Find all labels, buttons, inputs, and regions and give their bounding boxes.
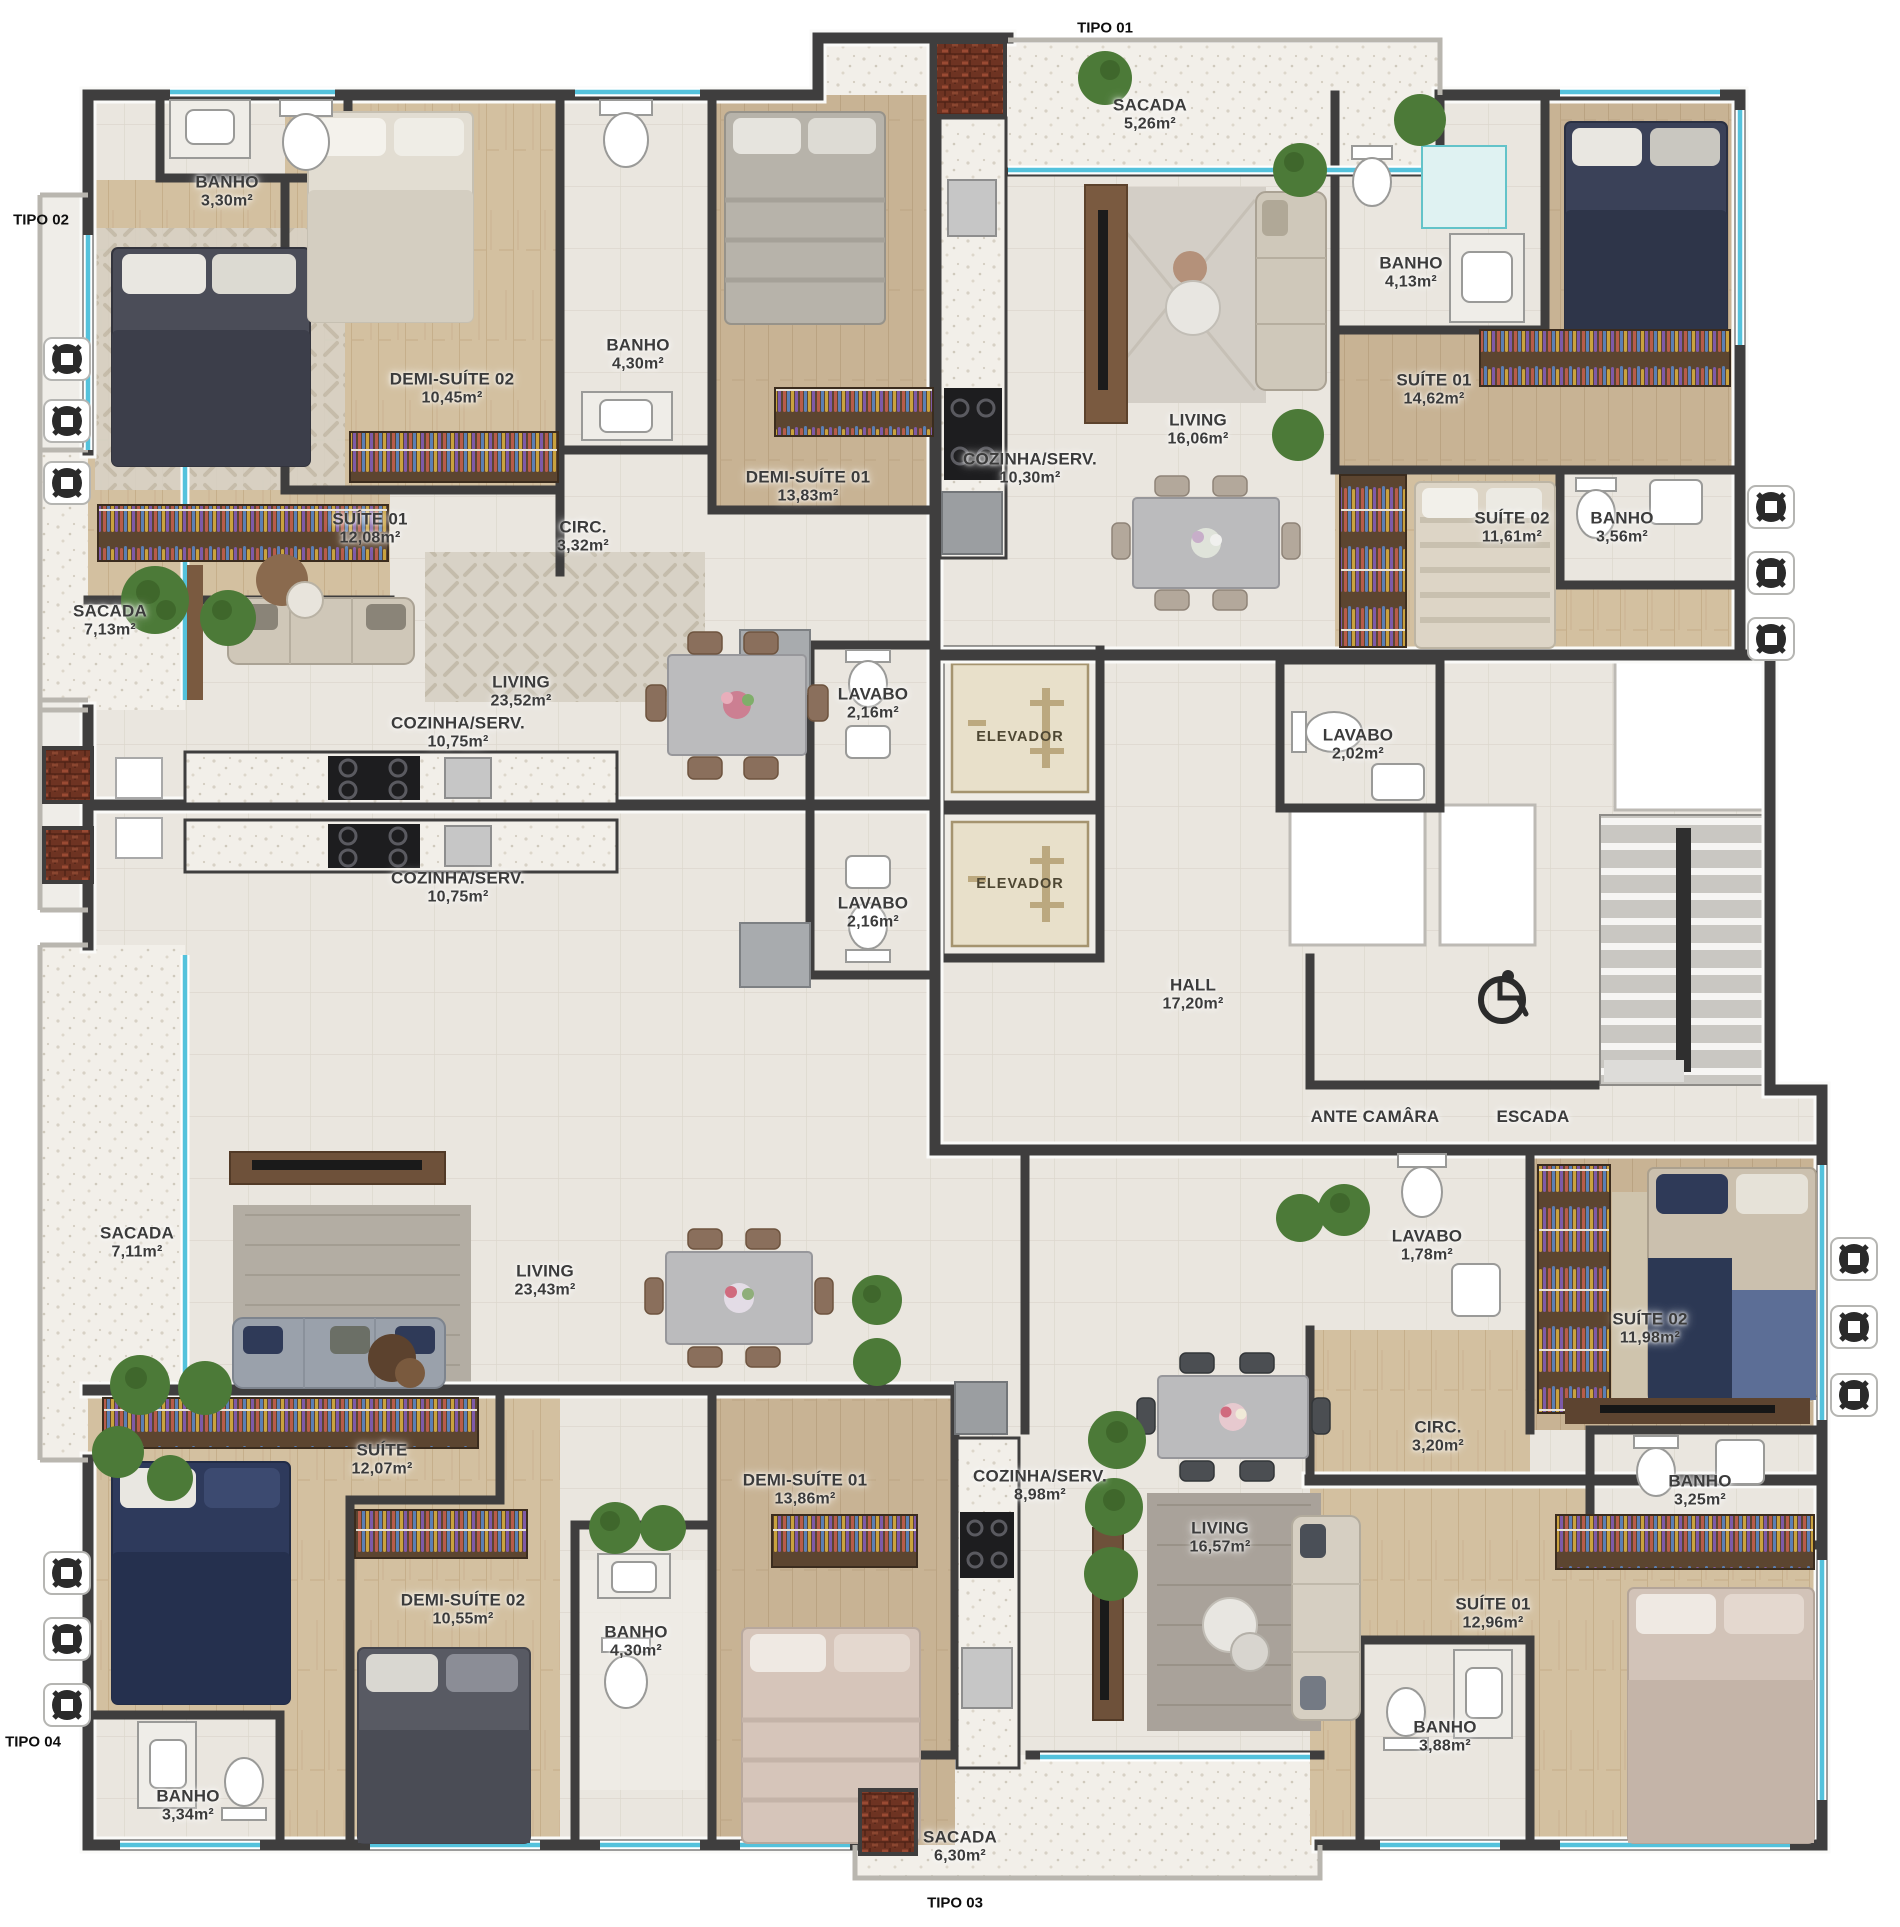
room-label-banho-29: BANHO3,34m² [156,1787,219,1826]
room-label-lavabo-22: LAVABO2,16m² [838,894,908,933]
room-area: 8,98m² [973,1487,1107,1506]
room-label-lavabo-17: LAVABO2,02m² [1323,726,1393,765]
room-area: 7,13m² [73,622,147,641]
room-name: SUÍTE 02 [1474,509,1549,529]
room-label-escada-20: ESCADA [1497,1107,1570,1127]
room-name: COZINHA/SERV. [391,714,525,734]
room-area: 3,88m² [1413,1738,1476,1757]
room-label-banho-27: BANHO4,30m² [604,1623,667,1662]
room-label-demi-su-te-01-28: DEMI-SUÍTE 0113,86m² [743,1471,867,1510]
room-name: SACADA [73,602,147,622]
room-area: 1,78m² [1392,1247,1462,1266]
room-name: DEMI-SUÍTE 02 [390,370,514,390]
room-name: LAVABO [838,894,908,914]
room-area: 16,06m² [1168,431,1229,450]
room-area: 3,25m² [1668,1492,1731,1511]
room-name: ESCADA [1497,1107,1570,1127]
room-label-sacada-7: SACADA7,13m² [73,602,147,641]
room-name: LIVING [1168,411,1229,431]
room-label-lavabo-32: LAVABO1,78m² [1392,1227,1462,1266]
room-area: 4,30m² [606,356,669,375]
tipo-label-tipo-03: TIPO 03 [927,1895,983,1912]
room-name: BANHO [1413,1718,1476,1738]
room-name: LAVABO [1323,726,1393,746]
room-name: SUÍTE 01 [1396,371,1471,391]
room-name: DEMI-SUÍTE 02 [401,1591,525,1611]
room-name: LIVING [491,673,552,693]
room-label-ante-cam-ra-19: ANTE CAMÂRA [1311,1107,1440,1127]
room-label-demi-su-te-01-3: DEMI-SUÍTE 0113,83m² [746,468,870,507]
room-label-su-te-02-15: SUÍTE 0211,61m² [1474,509,1549,548]
room-area: 16,57m² [1190,1539,1251,1558]
room-area: 10,75m² [391,889,525,908]
room-area: 3,30m² [195,193,258,212]
room-area: 3,34m² [156,1807,219,1826]
room-label-su-te-01-36: SUÍTE 0112,96m² [1455,1595,1530,1634]
room-area: 5,26m² [1113,116,1187,135]
room-area: 11,61m² [1474,529,1549,548]
room-name: LAVABO [1392,1227,1462,1247]
room-label-su-te-01-14: SUÍTE 0114,62m² [1396,371,1471,410]
room-area: 2,16m² [838,914,908,933]
room-name: COZINHA/SERV. [391,869,525,889]
labels-layer: BANHO3,30m²DEMI-SUÍTE 0210,45m²BANHO4,30… [0,0,1900,1927]
room-area: 23,52m² [491,693,552,712]
elevator-label-1: ELEVADOR [976,729,1064,745]
room-area: 3,32m² [557,538,609,557]
floor-plan-canvas: BANHO3,30m²DEMI-SUÍTE 0210,45m²BANHO4,30… [0,0,1900,1927]
room-label-living-23: LIVING23,43m² [515,1262,576,1301]
room-name: DEMI-SUÍTE 01 [743,1471,867,1491]
room-name: SUÍTE 02 [1612,1310,1687,1330]
room-area: 14,62m² [1396,391,1471,410]
room-label-su-te-01-4: SUÍTE 0112,08m² [332,510,407,549]
room-name: SACADA [100,1224,174,1244]
room-area: 4,13m² [1379,274,1442,293]
room-label-living-12: LIVING16,06m² [1168,411,1229,450]
room-name: CIRC. [1412,1418,1464,1438]
room-name: BANHO [195,173,258,193]
room-label-su-te-02-34: SUÍTE 0211,98m² [1612,1310,1687,1349]
room-label-sacada-10: SACADA5,26m² [1113,96,1187,135]
tipo-label-tipo-02: TIPO 02 [13,212,69,229]
room-name: LIVING [1190,1519,1251,1539]
room-name: LAVABO [838,685,908,705]
room-label-cozinha-serv-30: COZINHA/SERV.8,98m² [973,1467,1107,1506]
room-area: 17,20m² [1163,996,1224,1015]
room-area: 23,43m² [515,1282,576,1301]
room-area: 4,30m² [604,1643,667,1662]
room-label-sacada-24: SACADA7,11m² [100,1224,174,1263]
room-name: BANHO [156,1787,219,1807]
elevator-label-2: ELEVADOR [976,876,1064,892]
room-name: BANHO [1590,509,1653,529]
room-area: 13,86m² [743,1491,867,1510]
room-label-banho-16: BANHO3,56m² [1590,509,1653,548]
room-label-sacada-38: SACADA6,30m² [923,1828,997,1867]
room-label-banho-35: BANHO3,25m² [1668,1472,1731,1511]
room-name: SUÍTE 01 [1455,1595,1530,1615]
room-label-living-6: LIVING23,52m² [491,673,552,712]
room-area: 3,20m² [1412,1438,1464,1457]
room-label-demi-su-te-02-1: DEMI-SUÍTE 0210,45m² [390,370,514,409]
room-name: BANHO [604,1623,667,1643]
room-label-cozinha-serv-11: COZINHA/SERV.10,30m² [963,450,1097,489]
room-label-su-te-25: SUÍTE12,07m² [352,1441,413,1480]
room-label-circ-33: CIRC.3,20m² [1412,1418,1464,1457]
room-area: 3,56m² [1590,529,1653,548]
room-label-banho-37: BANHO3,88m² [1413,1718,1476,1757]
room-label-cozinha-serv-21: COZINHA/SERV.10,75m² [391,869,525,908]
room-area: 2,02m² [1323,746,1393,765]
room-label-demi-su-te-02-26: DEMI-SUÍTE 0210,55m² [401,1591,525,1630]
room-label-banho-0: BANHO3,30m² [195,173,258,212]
room-area: 10,75m² [391,734,525,753]
room-name: DEMI-SUÍTE 01 [746,468,870,488]
room-area: 12,96m² [1455,1615,1530,1634]
room-area: 12,08m² [332,530,407,549]
room-name: BANHO [606,336,669,356]
room-area: 10,45m² [390,390,514,409]
room-area: 12,07m² [352,1461,413,1480]
room-label-lavabo-9: LAVABO2,16m² [838,685,908,724]
tipo-label-tipo-04: TIPO 04 [5,1734,61,1751]
room-name: HALL [1163,976,1224,996]
room-name: COZINHA/SERV. [973,1467,1107,1487]
room-name: SUÍTE 01 [332,510,407,530]
room-label-hall-18: HALL17,20m² [1163,976,1224,1015]
room-label-banho-2: BANHO4,30m² [606,336,669,375]
room-name: ANTE CAMÂRA [1311,1107,1440,1127]
room-area: 13,83m² [746,488,870,507]
room-area: 7,11m² [100,1244,174,1263]
room-name: SACADA [1113,96,1187,116]
room-area: 6,30m² [923,1848,997,1867]
room-name: SACADA [923,1828,997,1848]
room-area: 2,16m² [838,705,908,724]
room-label-living-31: LIVING16,57m² [1190,1519,1251,1558]
room-label-cozinha-serv-8: COZINHA/SERV.10,75m² [391,714,525,753]
room-name: CIRC. [557,518,609,538]
room-area: 10,30m² [963,470,1097,489]
room-name: SUÍTE [352,1441,413,1461]
room-name: LIVING [515,1262,576,1282]
room-name: BANHO [1379,254,1442,274]
room-area: 11,98m² [1612,1330,1687,1349]
room-label-banho-13: BANHO4,13m² [1379,254,1442,293]
room-label-circ-5: CIRC.3,32m² [557,518,609,557]
room-name: COZINHA/SERV. [963,450,1097,470]
room-name: BANHO [1668,1472,1731,1492]
tipo-label-tipo-01: TIPO 01 [1077,20,1133,37]
room-area: 10,55m² [401,1611,525,1630]
